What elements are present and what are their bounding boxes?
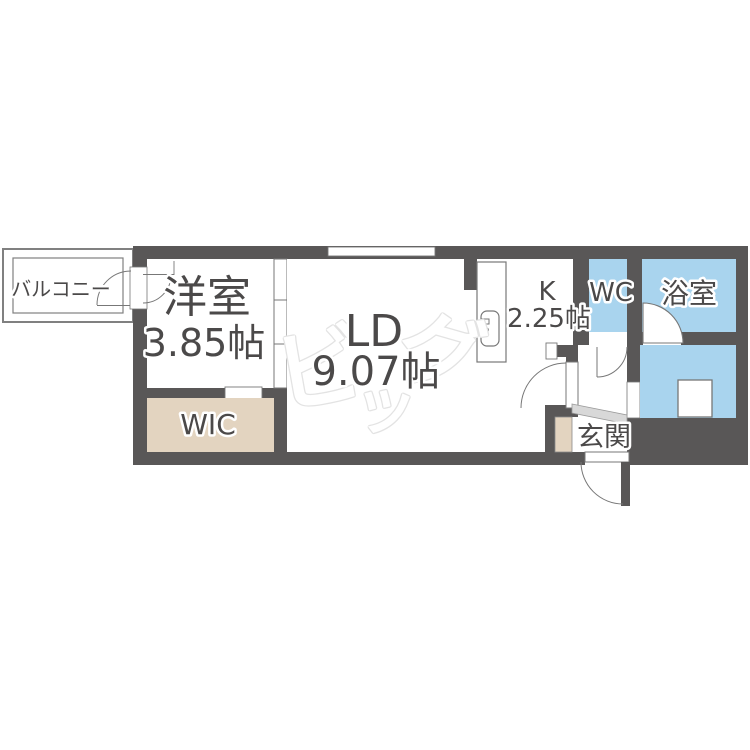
shoe-cabinet (555, 417, 572, 452)
floor-plan-svg: ビ ッ グ バルコニー 洋室 3.85帖 LD 9.07帖 K 2.25帖 WC… (0, 0, 750, 750)
kitchen-wall-stub (464, 259, 477, 290)
kitchen-size: 2.25帖 (507, 304, 591, 334)
wc-label: WC (589, 278, 633, 308)
entry-door-swing-arc (581, 462, 623, 504)
washing-machine-pan (678, 380, 712, 417)
window (328, 247, 435, 256)
wic-opening (225, 387, 262, 399)
entrance-label: 玄関 (577, 422, 631, 453)
floor-plan: ビ ッ グ バルコニー 洋室 3.85帖 LD 9.07帖 K 2.25帖 WC… (0, 0, 750, 750)
kitchen-label: K (538, 277, 556, 307)
entry-wall-stub (621, 462, 630, 506)
washroom-opening (627, 382, 640, 418)
western-room-label: 洋室 (163, 272, 251, 323)
kitchen-opening (546, 343, 557, 359)
western-room-size: 3.85帖 (143, 321, 266, 365)
hall-wall-stub (557, 345, 578, 357)
ld-door-leaf (566, 362, 578, 408)
balcony-label: バルコニー (11, 277, 111, 301)
bath-label: 浴室 (661, 277, 717, 310)
entry-door-leaf (585, 452, 629, 462)
wc-doorway (589, 332, 627, 345)
ld-size: 9.07帖 (311, 349, 440, 395)
wic-label: WIC (180, 408, 236, 441)
